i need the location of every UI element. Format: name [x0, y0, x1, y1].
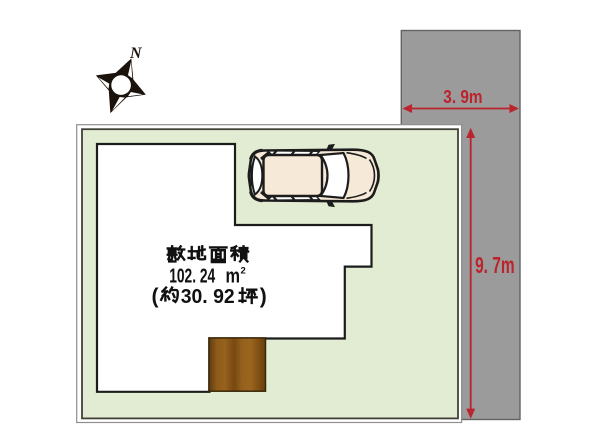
- svg-text:3. 9m: 3. 9m: [443, 87, 482, 107]
- svg-text:102. 24: 102. 24: [169, 264, 215, 287]
- svg-text:(: (: [152, 285, 159, 308]
- svg-text:m: m: [226, 264, 241, 287]
- svg-text:9. 7m: 9. 7m: [475, 252, 514, 278]
- svg-text:N: N: [129, 45, 143, 62]
- svg-text:): ): [260, 285, 267, 308]
- svg-text:30. 92: 30. 92: [181, 285, 235, 308]
- svg-text:2: 2: [241, 266, 246, 277]
